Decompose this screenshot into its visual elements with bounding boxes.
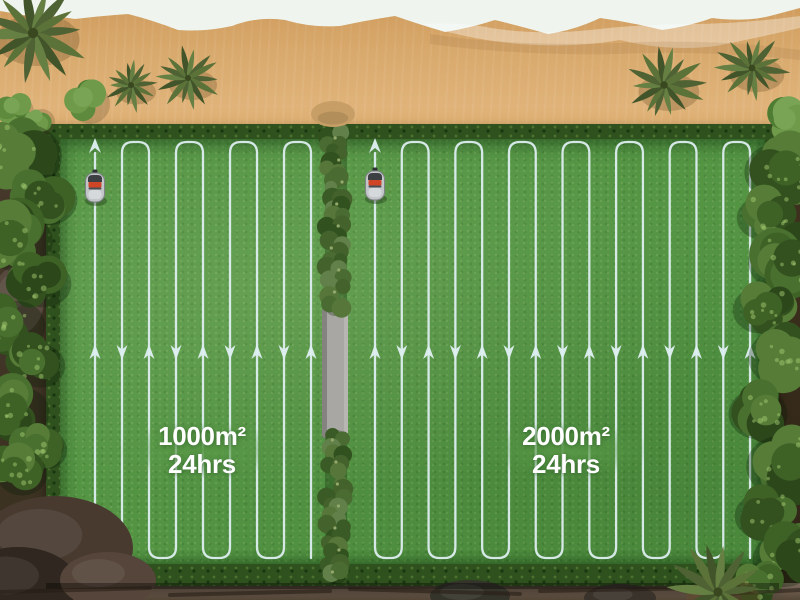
robot-front-panel xyxy=(88,175,102,182)
robot-front-panel xyxy=(368,173,382,180)
divider-hedge xyxy=(311,101,355,584)
zone-label-right: 2000m² 24hrs xyxy=(466,414,666,486)
beach-bush xyxy=(64,79,110,124)
robot-accent-stripe xyxy=(369,180,382,186)
surf-foam xyxy=(0,0,800,60)
zone-label-left: 1000m² 24hrs xyxy=(102,414,302,486)
palm-tree xyxy=(627,46,707,117)
scene-overlay xyxy=(0,0,800,600)
aerial-lawn-scene: 1000m² 24hrs 2000m² 24hrs xyxy=(0,0,800,600)
mow-path-zone-1000 xyxy=(89,138,317,558)
robot-mower xyxy=(365,168,387,205)
robot-accent-stripe xyxy=(89,182,102,188)
route-start-arrow xyxy=(369,138,381,153)
zone-area-text: 2000m² xyxy=(466,422,666,450)
palm-tree xyxy=(105,59,158,113)
mow-path-zone-2000 xyxy=(369,138,756,558)
zone-area-text: 1000m² xyxy=(102,422,302,450)
route-start-arrow xyxy=(89,138,101,153)
mow-paths xyxy=(89,138,756,558)
zone-duration-text: 24hrs xyxy=(102,450,302,478)
robot-mower xyxy=(85,170,107,207)
zone-duration-text: 24hrs xyxy=(466,450,666,478)
palm-tree xyxy=(155,45,219,111)
